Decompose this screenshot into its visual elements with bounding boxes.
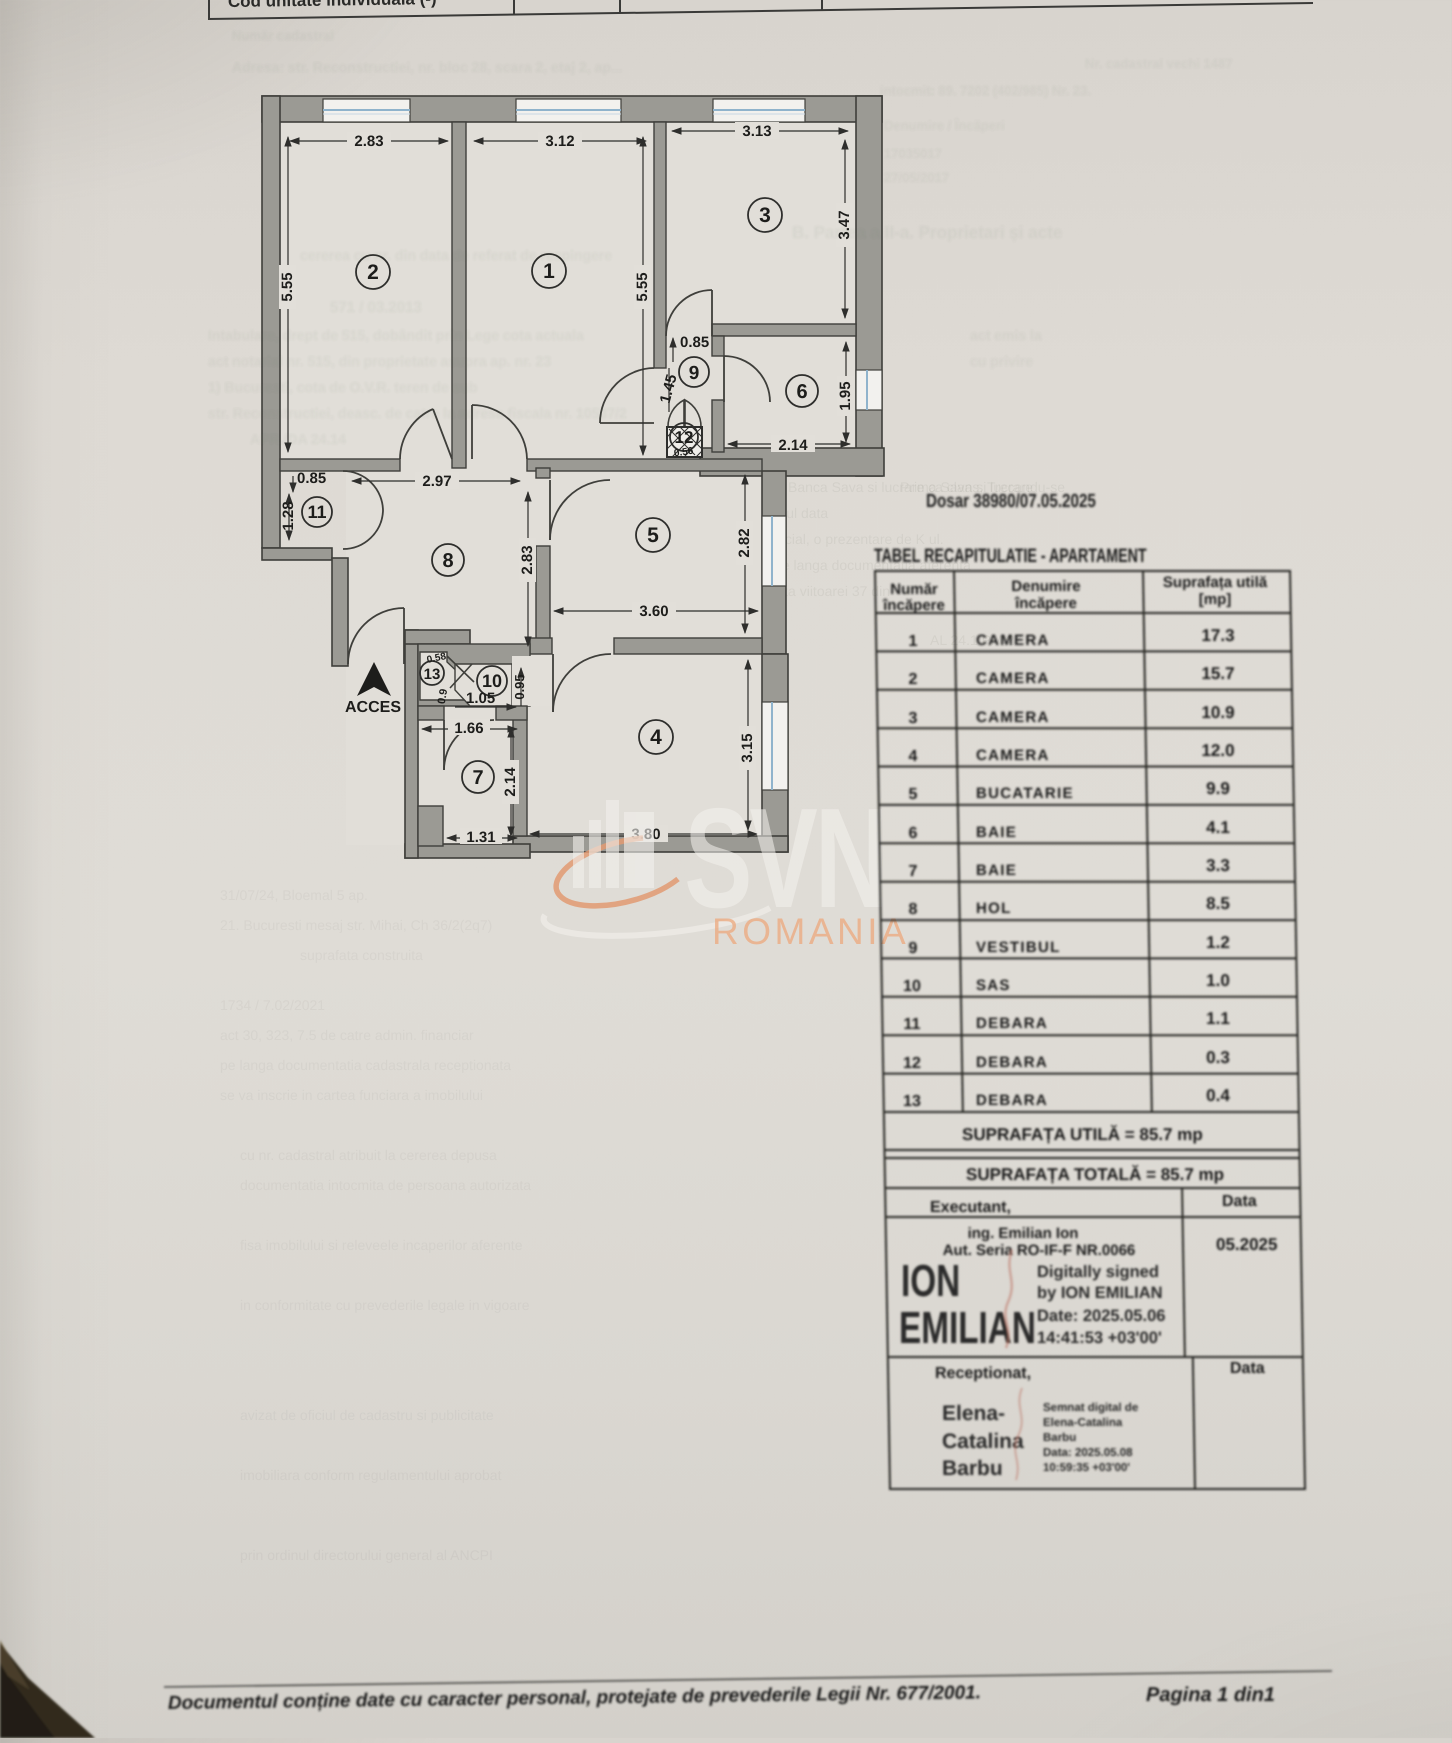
svg-text:2: 2 — [909, 671, 918, 688]
svg-text:pe langa documentatia cadastra: pe langa documentatia cadastrala recepti… — [220, 1057, 511, 1073]
svg-text:documentatia intocmita de pers: documentatia intocmita de persoana autor… — [240, 1177, 531, 1193]
svg-text:8: 8 — [442, 550, 453, 572]
svg-text:9: 9 — [909, 940, 918, 957]
svg-text:12: 12 — [903, 1055, 921, 1072]
svg-text:Număr cadastral: Număr cadastral — [232, 28, 334, 43]
svg-text:2: 2 — [367, 261, 379, 284]
svg-text:1.0: 1.0 — [1206, 971, 1230, 990]
svg-text:Adresa: str. Reconstructiei, n: Adresa: str. Reconstructiei, nr. bloc 28… — [232, 59, 623, 75]
svg-text:CAMERA: CAMERA — [976, 632, 1050, 649]
svg-text:1.66: 1.66 — [454, 720, 483, 737]
svg-text:cu nr. cadastral atribuit la c: cu nr. cadastral atribuit la cererea dep… — [240, 1147, 497, 1163]
svg-text:3.13: 3.13 — [742, 123, 771, 140]
svg-text:fisa imobilului si releveele i: fisa imobilului si releveele incaperilor… — [240, 1237, 523, 1253]
svg-text:VESTIBUL: VESTIBUL — [976, 939, 1061, 956]
svg-text:9.9: 9.9 — [1206, 779, 1230, 798]
svg-text:intocmit: 89. 7202 (402/985) N: intocmit: 89. 7202 (402/985) Nr. 23. — [880, 83, 1091, 98]
svg-text:Elena-Catalina: Elena-Catalina — [1043, 1417, 1123, 1429]
svg-text:3.12: 3.12 — [545, 133, 574, 150]
svg-text:CAMERA: CAMERA — [976, 670, 1050, 687]
svg-text:1.2: 1.2 — [1206, 933, 1230, 952]
svg-text:Data: Data — [1230, 1360, 1265, 1377]
svg-text:10: 10 — [482, 671, 502, 691]
svg-text:1.28: 1.28 — [280, 501, 297, 530]
svg-text:0.85: 0.85 — [297, 470, 326, 487]
svg-text:Date: 2025.05.06: Date: 2025.05.06 — [1037, 1307, 1165, 1325]
svg-text:2.83: 2.83 — [519, 545, 536, 574]
svg-text:BUCATARIE: BUCATARIE — [976, 785, 1074, 802]
svg-text:Data: Data — [1222, 1193, 1257, 1210]
svg-text:10:59:35 +03'00': 10:59:35 +03'00' — [1043, 1462, 1130, 1474]
svg-text:2.14: 2.14 — [502, 767, 519, 797]
svg-text:Documentul conține date cu car: Documentul conține date cu caracter pers… — [168, 1682, 981, 1714]
svg-text:ing. Emilian Ion: ing. Emilian Ion — [968, 1225, 1079, 1242]
svg-text:1.1: 1.1 — [1206, 1009, 1230, 1028]
svg-text:1.05: 1.05 — [466, 690, 495, 707]
svg-text:9: 9 — [689, 363, 700, 384]
svg-text:CAMERA: CAMERA — [976, 747, 1050, 764]
svg-text:2.83: 2.83 — [354, 133, 383, 150]
svg-text:Barbu: Barbu — [942, 1457, 1003, 1480]
svg-text:0.3: 0.3 — [1206, 1048, 1230, 1067]
svg-text:12: 12 — [675, 428, 694, 447]
svg-text:avizat de oficiul de cadastru: avizat de oficiul de cadastru si publici… — [240, 1407, 494, 1423]
svg-text:2.97: 2.97 — [422, 473, 451, 490]
svg-text:in conformitate cu prevederile: in conformitate cu prevederile legale in… — [240, 1297, 530, 1313]
svg-text:TABEL RECAPITULATIE - APARTAME: TABEL RECAPITULATIE - APARTAMENT — [874, 545, 1147, 567]
svg-text:1.95: 1.95 — [837, 381, 854, 410]
svg-text:3.3: 3.3 — [1206, 856, 1230, 875]
svg-text:SUPRAFAȚA TOTALĂ = 85.7 mp: SUPRAFAȚA TOTALĂ = 85.7 mp — [966, 1164, 1224, 1184]
svg-text:DEBARA: DEBARA — [976, 1015, 1048, 1032]
svg-text:7: 7 — [909, 863, 918, 880]
svg-text:10.9: 10.9 — [1201, 703, 1234, 722]
svg-text:31/07/24, Bloemal 5 ap.: 31/07/24, Bloemal 5 ap. — [220, 887, 368, 903]
svg-text:Nr. cadastral vechi 1487: Nr. cadastral vechi 1487 — [1085, 56, 1232, 71]
svg-text:ION: ION — [901, 1255, 960, 1306]
svg-text:1) Bucuresti, cota de O.V.R. t: 1) Bucuresti, cota de O.V.R. teren de su… — [208, 379, 477, 395]
svg-text:BAIE: BAIE — [976, 824, 1017, 841]
svg-text:3.15: 3.15 — [739, 733, 756, 762]
svg-text:HOL: HOL — [976, 900, 1012, 917]
svg-text:4: 4 — [650, 726, 662, 749]
svg-text:8: 8 — [909, 901, 918, 918]
svg-text:cererea cu nr. din data de ref: cererea cu nr. din data de referat de re… — [300, 247, 612, 263]
svg-text:2.82: 2.82 — [736, 528, 753, 557]
svg-text:B. Partea a II-a. Proprietari: B. Partea a II-a. Proprietari și acte — [792, 223, 1062, 242]
svg-text:27/05/2017: 27/05/2017 — [884, 170, 949, 185]
svg-text:7: 7 — [472, 767, 483, 789]
svg-text:12.0: 12.0 — [1201, 741, 1234, 760]
svg-text:13: 13 — [903, 1093, 921, 1110]
svg-text:DEBARA: DEBARA — [976, 1092, 1048, 1109]
svg-text:5.55: 5.55 — [634, 272, 651, 301]
svg-text:act 30, 323, 7.5 de catre admi: act 30, 323, 7.5 de catre admin. financi… — [220, 1027, 474, 1043]
svg-text:15.7: 15.7 — [1201, 664, 1234, 683]
svg-text:Număr: Număr — [890, 581, 938, 598]
svg-text:17035017: 17035017 — [884, 146, 942, 161]
svg-text:act notarial nr. 515, din prop: act notarial nr. 515, din proprietate as… — [208, 353, 551, 369]
svg-text:ACCES: ACCES — [345, 699, 401, 716]
svg-text:5: 5 — [909, 786, 918, 803]
svg-text:8.5: 8.5 — [1206, 894, 1230, 913]
svg-text:încăpere: încăpere — [1014, 595, 1077, 612]
svg-text:Suprafața utilă: Suprafața utilă — [1163, 574, 1268, 591]
svg-text:Catalina: Catalina — [942, 1430, 1024, 1453]
svg-text:ROMANIA: ROMANIA — [712, 911, 909, 952]
svg-text:Executant,: Executant, — [930, 1199, 1011, 1216]
svg-text:05.2025: 05.2025 — [1216, 1235, 1277, 1254]
svg-text:Elena-: Elena- — [942, 1402, 1005, 1425]
svg-text:prin ordinul directorului gene: prin ordinul directorului general al ANC… — [240, 1547, 493, 1563]
svg-text:11: 11 — [904, 1016, 921, 1033]
svg-text:Receptionat,: Receptionat, — [935, 1365, 1031, 1382]
svg-text:6: 6 — [796, 381, 807, 403]
svg-text:act emis la: act emis la — [970, 327, 1042, 343]
svg-text:0.95: 0.95 — [512, 674, 527, 699]
svg-text:se va inscrie in cartea funcia: se va inscrie in cartea funciara a imobi… — [220, 1087, 483, 1103]
svg-text:Intabulare, drept de 515, dobâ: Intabulare, drept de 515, dobândit prin … — [208, 327, 584, 343]
svg-text:Semnat digital de: Semnat digital de — [1043, 1402, 1138, 1414]
svg-text:3: 3 — [759, 204, 771, 227]
svg-text:11: 11 — [307, 502, 326, 522]
svg-text:by ION EMILIAN: by ION EMILIAN — [1037, 1284, 1163, 1302]
svg-text:Aut. Seria RO-IF-F NR.0066: Aut. Seria RO-IF-F NR.0066 — [943, 1242, 1136, 1259]
svg-text:3: 3 — [909, 710, 918, 727]
svg-text:DEBARA: DEBARA — [976, 1054, 1048, 1071]
svg-text:5: 5 — [647, 524, 659, 547]
svg-text:14:41:53 +03'00': 14:41:53 +03'00' — [1037, 1329, 1162, 1347]
svg-text:Dosar 38980/07.05.2025: Dosar 38980/07.05.2025 — [926, 491, 1096, 512]
svg-text:Denumire: Denumire — [1011, 578, 1080, 595]
svg-text:Digitally signed: Digitally signed — [1037, 1263, 1159, 1281]
svg-text:0.4: 0.4 — [1206, 1086, 1230, 1105]
svg-text:571 / 03.2013: 571 / 03.2013 — [330, 299, 422, 316]
svg-text:6: 6 — [909, 825, 918, 842]
svg-text:2.14: 2.14 — [778, 437, 808, 454]
svg-text:21. Bucuresti mesaj str. Mihai: 21. Bucuresti mesaj str. Mihai, Ch 36/2(… — [220, 917, 492, 933]
svg-text:1.31: 1.31 — [466, 829, 495, 846]
svg-text:1: 1 — [543, 260, 555, 283]
svg-text:10: 10 — [903, 978, 921, 995]
svg-text:Data: 2025.05.08: Data: 2025.05.08 — [1043, 1447, 1133, 1459]
svg-text:EMILIAN: EMILIAN — [899, 1302, 1036, 1353]
svg-text:CAMERA: CAMERA — [976, 709, 1050, 726]
svg-text:încăpere: încăpere — [882, 597, 945, 614]
svg-text:4.1: 4.1 — [1206, 818, 1230, 837]
svg-text:cu privire: cu privire — [970, 353, 1033, 369]
svg-text:Denumire / Încăperi: Denumire / Încăperi — [884, 118, 1005, 133]
svg-text:imobiliara conform regulamentu: imobiliara conform regulamentului aproba… — [240, 1467, 502, 1483]
svg-text:[mp]: [mp] — [1199, 591, 1232, 608]
svg-text:SAS: SAS — [976, 977, 1011, 994]
svg-text:APR./DA 24.14: APR./DA 24.14 — [250, 431, 346, 447]
svg-text:Pagina 1 din1: Pagina 1 din1 — [1146, 1684, 1275, 1706]
svg-text:BAIE: BAIE — [976, 862, 1017, 879]
svg-text:3.60: 3.60 — [639, 603, 668, 620]
svg-text:1: 1 — [909, 633, 918, 650]
svg-text:Cod unitate individuala (-): Cod unitate individuala (-) — [228, 0, 437, 11]
svg-text:0.85: 0.85 — [680, 334, 709, 351]
svg-text:17.3: 17.3 — [1201, 626, 1234, 645]
svg-text:4: 4 — [909, 748, 918, 765]
svg-text:13: 13 — [424, 666, 441, 683]
svg-text:5.55: 5.55 — [279, 272, 296, 301]
svg-text:Barbu: Barbu — [1043, 1432, 1076, 1444]
svg-text:str. Reconstructiei, deasc. de: str. Reconstructiei, deasc. de catre la … — [208, 405, 627, 421]
svg-text:1734 / 7.02/2021: 1734 / 7.02/2021 — [220, 997, 325, 1013]
svg-text:suprafata construita: suprafata construita — [300, 947, 423, 963]
svg-text:SUPRAFAȚA UTILĂ = 85.7 mp: SUPRAFAȚA UTILĂ = 85.7 mp — [962, 1124, 1203, 1144]
